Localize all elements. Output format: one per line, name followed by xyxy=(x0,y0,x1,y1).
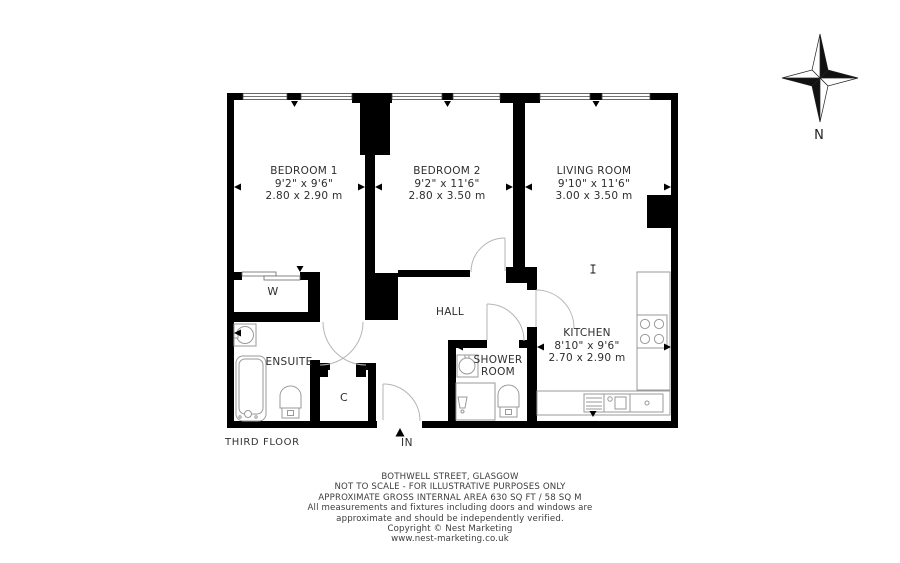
room-name: LIVING ROOM xyxy=(555,165,632,178)
window xyxy=(243,94,287,100)
room-dimensions-imperial: 9'10" x 11'6" xyxy=(555,178,632,191)
kitchen-door xyxy=(536,290,574,328)
window xyxy=(392,94,442,100)
footer-address: BOTHWELL STREET, GLASGOW xyxy=(0,472,900,482)
wardrobe-sliding-door xyxy=(242,272,300,280)
room-label-cupboard: C xyxy=(340,392,348,405)
room-name: BEDROOM 1 xyxy=(265,165,342,178)
room-label-bedroom-2: BEDROOM 2 9'2" x 11'6" 2.80 x 3.50 m xyxy=(408,165,485,203)
room-label-bedroom-1: BEDROOM 1 9'2" x 9'6" 2.80 x 2.90 m xyxy=(265,165,342,203)
room-dimensions-imperial: 8'10" x 9'6" xyxy=(548,340,625,353)
window xyxy=(540,94,590,100)
room-name: KITCHEN xyxy=(548,327,625,340)
window xyxy=(602,94,650,100)
room-dimensions-metric: 2.80 x 2.90 m xyxy=(265,190,342,203)
sink-icon xyxy=(234,324,256,346)
room-dimensions-imperial: 9'2" x 9'6" xyxy=(265,178,342,191)
walls xyxy=(227,93,678,428)
toilet-icon xyxy=(280,386,301,418)
room-label-wardrobe: W xyxy=(267,286,278,299)
shower-room-door xyxy=(487,304,524,341)
room-dimensions-imperial: 9'2" x 11'6" xyxy=(408,178,485,191)
compass-rose-icon xyxy=(782,34,858,122)
entrance-label: IN xyxy=(401,437,413,449)
bedroom1-door xyxy=(323,322,366,365)
footer-disclaimer-line1: All measurements and fixtures including … xyxy=(0,503,900,513)
floorplan-page: BEDROOM 1 9'2" x 9'6" 2.80 x 2.90 m BEDR… xyxy=(0,0,900,563)
room-label-shower-room: SHOWER ROOM xyxy=(463,355,533,378)
toilet-icon xyxy=(498,385,519,417)
room-name: BEDROOM 2 xyxy=(408,165,485,178)
bedroom2-door xyxy=(471,238,505,272)
room-label-ensuite: ENSUITE xyxy=(265,356,312,369)
footer-copyright: Copyright © Nest Marketing xyxy=(0,524,900,534)
compass-north-label: N xyxy=(814,128,824,143)
footer: BOTHWELL STREET, GLASGOW NOT TO SCALE - … xyxy=(0,472,900,545)
room-dimensions-metric: 2.80 x 3.50 m xyxy=(408,190,485,203)
floor-label: THIRD FLOOR xyxy=(225,437,300,448)
hob-icon xyxy=(637,315,667,348)
footer-website: www.nest-marketing.co.uk xyxy=(0,534,900,544)
room-label-hall: HALL xyxy=(436,306,464,319)
room-label-kitchen: KITCHEN 8'10" x 9'6" 2.70 x 2.90 m xyxy=(548,327,625,365)
footer-disclaimer-line2: approximate and should be independently … xyxy=(0,514,900,524)
room-dimensions-metric: 3.00 x 3.50 m xyxy=(555,190,632,203)
footer-scale-note: NOT TO SCALE - FOR ILLUSTRATIVE PURPOSES… xyxy=(0,482,900,492)
ensuite-fixtures xyxy=(234,324,301,421)
window xyxy=(453,94,500,100)
ensuite-door xyxy=(320,322,363,365)
entrance-door xyxy=(383,384,420,421)
footer-area-note: APPROXIMATE GROSS INTERNAL AREA 630 SQ F… xyxy=(0,493,900,503)
kitchen-sink-icon xyxy=(584,394,663,412)
shower-icon xyxy=(456,383,495,420)
window xyxy=(301,94,352,100)
room-label-living-room: LIVING ROOM 9'10" x 11'6" 3.00 x 3.50 m xyxy=(555,165,632,203)
room-dimensions-metric: 2.70 x 2.90 m xyxy=(548,352,625,365)
entrance-arrow-icon xyxy=(396,428,405,437)
bath-icon xyxy=(236,356,266,421)
